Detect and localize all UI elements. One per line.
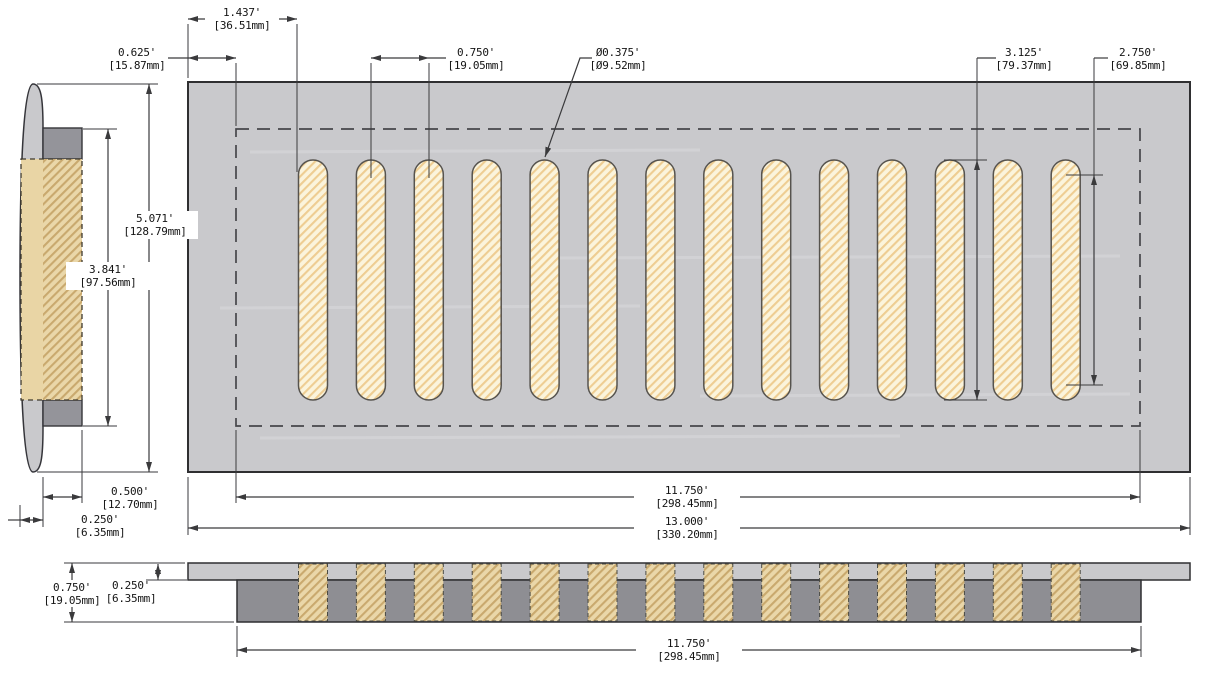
vent-cover-technical-drawing: 1.437' [36.51mm] 0.625' [15.87mm] 0.750'… [0,0,1214,673]
dim-13000-inches: 13.000' [665,515,709,528]
vent-slot [1051,160,1080,400]
faceplate [188,82,1190,472]
dim-11750-top-mm: [298.45mm] [655,497,718,510]
vent-slot [414,160,443,400]
dim-0750-front-mm: [19.05mm] [44,594,101,607]
dim-0250-front-inches: 0.250' [112,579,150,592]
dim-0750-front-inches: 0.750' [53,581,91,594]
dim-0500-mm: [12.70mm] [102,498,159,511]
front-slot-section [472,564,501,621]
front-slot-section [1051,564,1080,621]
dim-11750-front: 11.750' [298.45mm] [237,626,1141,663]
dim-0375-inches: Ø0.375' [596,46,640,59]
dim-11750-front-inches: 11.750' [667,637,711,650]
side-duct-collar-top [43,128,82,159]
front-slot-section [993,564,1022,621]
dim-0250-side-mm: [6.35mm] [75,526,126,539]
front-slot-section [935,564,964,621]
vent-slot [935,160,964,400]
front-section-view [188,563,1190,622]
dim-11750-front-mm: [298.45mm] [657,650,720,663]
dim-3841-inches: 3.841' [89,263,127,276]
dim-0250-front: 0.250' [6.35mm] [106,564,187,605]
front-slot-section [588,564,617,621]
front-slot-section [530,564,559,621]
vent-slot [704,160,733,400]
front-slot-section [414,564,443,621]
dim-0625-inches: 0.625' [118,46,156,59]
vent-slot [588,160,617,400]
dim-1437-inches: 1.437' [223,6,261,19]
front-slot-section [704,564,733,621]
front-slot-section [820,564,849,621]
dim-11750-top-inches: 11.750' [665,484,709,497]
front-slot-section [762,564,791,621]
dim-1437-mm: [36.51mm] [214,19,271,32]
dim-3125-mm: [79.37mm] [996,59,1053,72]
dim-2750-mm: [69.85mm] [1110,59,1167,72]
dim-0500-inches: 0.500' [111,485,149,498]
side-wood-strip [21,159,43,400]
front-slot-section [299,564,328,621]
dim-0750-inches: 0.750' [457,46,495,59]
vent-slot [530,160,559,400]
vent-slot [878,160,907,400]
vent-slot [820,160,849,400]
vent-slot [356,160,385,400]
dim-5071-mm: [128.79mm] [123,225,186,238]
dim-13000-mm: [330.20mm] [655,528,718,541]
side-duct-collar-bottom [43,400,82,426]
vent-slot [993,160,1022,400]
dim-0750-mm: [19.05mm] [448,59,505,72]
dim-0625-mm: [15.87mm] [109,59,166,72]
top-view [188,82,1190,472]
vent-slot [762,160,791,400]
dim-2750-inches: 2.750' [1119,46,1157,59]
dim-0375-mm: [Ø9.52mm] [590,59,647,72]
dim-5071-inches: 5.071' [136,212,174,225]
vent-slot [299,160,328,400]
vent-slot [472,160,501,400]
front-faceplate-bar [188,563,1190,580]
dim-3841-mm: [97.56mm] [80,276,137,289]
front-slot-section [878,564,907,621]
front-slot-section [356,564,385,621]
dim-3125-inches: 3.125' [1005,46,1043,59]
vent-slot [646,160,675,400]
dim-0250-front-mm: [6.35mm] [106,592,157,605]
dim-0250-side-inches: 0.250' [81,513,119,526]
front-slot-section [646,564,675,621]
drawing-canvas: 1.437' [36.51mm] 0.625' [15.87mm] 0.750'… [0,0,1214,673]
